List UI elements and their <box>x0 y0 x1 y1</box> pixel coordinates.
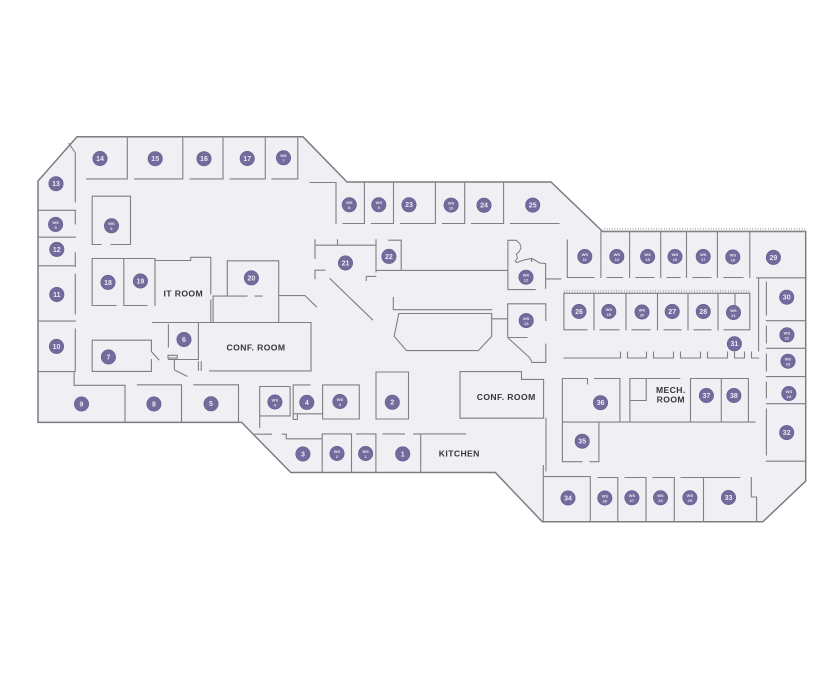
svg-text:22: 22 <box>385 254 393 261</box>
svg-text:24: 24 <box>787 394 792 399</box>
svg-text:18: 18 <box>104 280 112 287</box>
svg-text:6: 6 <box>182 337 186 344</box>
svg-text:13: 13 <box>52 181 60 188</box>
svg-text:10: 10 <box>53 344 61 351</box>
svg-text:3: 3 <box>301 451 305 458</box>
svg-text:5: 5 <box>209 401 213 408</box>
svg-text:21: 21 <box>731 313 736 318</box>
svg-text:CONF. ROOM: CONF. ROOM <box>477 392 536 402</box>
svg-text:19: 19 <box>137 278 145 285</box>
svg-text:15: 15 <box>645 257 650 262</box>
svg-text:30: 30 <box>783 295 791 302</box>
svg-text:27: 27 <box>630 498 635 503</box>
svg-text:10: 10 <box>449 206 454 211</box>
svg-text:16: 16 <box>673 257 678 262</box>
svg-text:34: 34 <box>564 495 572 502</box>
svg-text:ROOM: ROOM <box>657 394 685 404</box>
svg-text:12: 12 <box>524 278 529 283</box>
svg-text:20: 20 <box>248 275 256 282</box>
svg-text:14: 14 <box>615 257 620 262</box>
svg-text:27: 27 <box>668 309 676 316</box>
svg-text:26: 26 <box>575 309 583 316</box>
svg-text:36: 36 <box>597 400 605 407</box>
svg-text:1: 1 <box>401 451 405 458</box>
svg-text:29: 29 <box>770 255 778 262</box>
svg-text:14: 14 <box>96 156 104 163</box>
svg-text:28: 28 <box>603 498 608 503</box>
svg-text:35: 35 <box>578 439 586 446</box>
svg-text:2: 2 <box>390 400 394 407</box>
svg-text:16: 16 <box>200 156 208 163</box>
svg-text:38: 38 <box>730 393 738 400</box>
svg-text:12: 12 <box>53 247 61 254</box>
svg-text:28: 28 <box>699 309 707 316</box>
svg-text:24: 24 <box>480 203 488 210</box>
svg-text:32: 32 <box>783 430 791 437</box>
svg-text:9: 9 <box>80 401 84 408</box>
svg-text:22: 22 <box>785 335 790 340</box>
svg-text:37: 37 <box>703 393 711 400</box>
svg-text:KITCHEN: KITCHEN <box>439 449 480 459</box>
svg-text:19: 19 <box>607 312 612 317</box>
svg-text:31: 31 <box>731 341 739 348</box>
svg-text:CONF. ROOM: CONF. ROOM <box>227 343 286 353</box>
svg-text:8: 8 <box>152 401 156 408</box>
svg-text:17: 17 <box>701 257 706 262</box>
svg-text:20: 20 <box>640 312 645 317</box>
svg-text:7: 7 <box>106 354 110 361</box>
svg-text:25: 25 <box>529 203 537 210</box>
svg-text:17: 17 <box>243 156 251 163</box>
svg-text:4: 4 <box>305 400 309 407</box>
svg-text:13: 13 <box>524 321 529 326</box>
svg-text:26: 26 <box>658 498 663 503</box>
svg-text:21: 21 <box>342 260 350 267</box>
svg-text:IT ROOM: IT ROOM <box>164 288 204 298</box>
svg-text:15: 15 <box>151 156 159 163</box>
svg-text:23: 23 <box>786 362 791 367</box>
svg-text:11: 11 <box>53 292 61 299</box>
svg-text:33: 33 <box>725 495 733 502</box>
svg-text:18: 18 <box>731 257 736 262</box>
svg-text:25: 25 <box>688 498 693 503</box>
svg-text:23: 23 <box>405 202 413 209</box>
